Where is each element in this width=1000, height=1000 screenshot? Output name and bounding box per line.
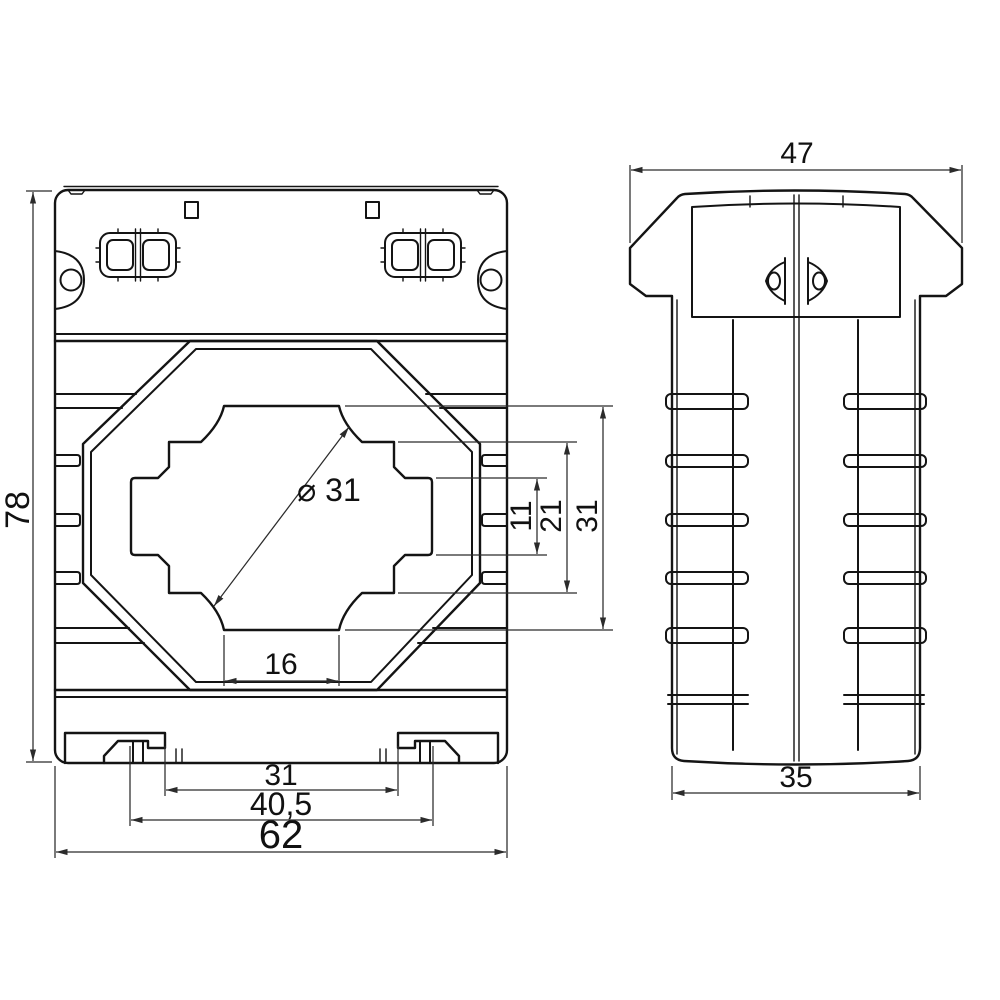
dim-aperture-total-height-label: 31	[571, 499, 604, 532]
shelf-lines	[55, 394, 507, 643]
dim-aperture-diameter: ⌀ 31	[214, 427, 361, 606]
mounting-ear-right	[478, 251, 507, 309]
dim-aperture-band-height-label: 11	[505, 500, 538, 531]
feed-through-opening	[131, 406, 432, 630]
rib-tabs-left	[666, 394, 748, 643]
dim-side-top-width-label: 47	[780, 137, 813, 170]
rib-inner-walls	[733, 320, 858, 750]
dim-aperture-mid-height: 21	[398, 442, 577, 593]
din-rail-clip-left	[65, 733, 165, 763]
dim-overall-height-label: 78	[0, 491, 37, 529]
cover-ticks	[750, 196, 843, 207]
technical-drawing-page: 78 62 40,5 31 16 ⌀ 31	[0, 0, 1000, 1000]
top-slot-left	[185, 202, 198, 218]
seal-eyelet-right	[808, 258, 827, 304]
side-body-outline	[630, 191, 962, 765]
ear-hole-right	[481, 270, 502, 291]
dim-aperture-band-height: 11	[436, 478, 547, 555]
top-slot-right	[366, 202, 379, 218]
dim-overall-height: 78	[0, 191, 52, 762]
side-view	[630, 191, 962, 765]
center-seam	[794, 195, 799, 761]
mounting-ear-left	[55, 251, 84, 309]
seal-eyelet-left	[766, 258, 785, 304]
dim-din-inner-span-label: 31	[264, 759, 297, 792]
din-rail-clip-right	[398, 733, 498, 763]
dim-aperture-mid-height-label: 21	[535, 499, 568, 532]
dim-aperture-diameter-label: ⌀ 31	[297, 472, 361, 508]
ear-hole-left	[61, 270, 82, 291]
dim-din-inner-span: 31	[165, 746, 398, 796]
dim-window-bottom-width-label: 16	[264, 648, 297, 681]
dim-side-body-width-label: 35	[779, 761, 812, 794]
drawing-canvas: 78 62 40,5 31 16 ⌀ 31	[0, 0, 1000, 1000]
bottom-band-lines	[668, 695, 924, 704]
edge-tabs	[55, 455, 507, 584]
dim-side-body-width: 35	[672, 761, 920, 800]
rib-tabs-right	[844, 394, 926, 643]
dim-window-bottom-width: 16	[224, 635, 339, 686]
terminal-clips-left	[96, 229, 180, 281]
side-dimensions: 47 35	[630, 137, 962, 800]
terminal-clips-right	[381, 229, 465, 281]
terminal-cover-side	[692, 204, 900, 318]
